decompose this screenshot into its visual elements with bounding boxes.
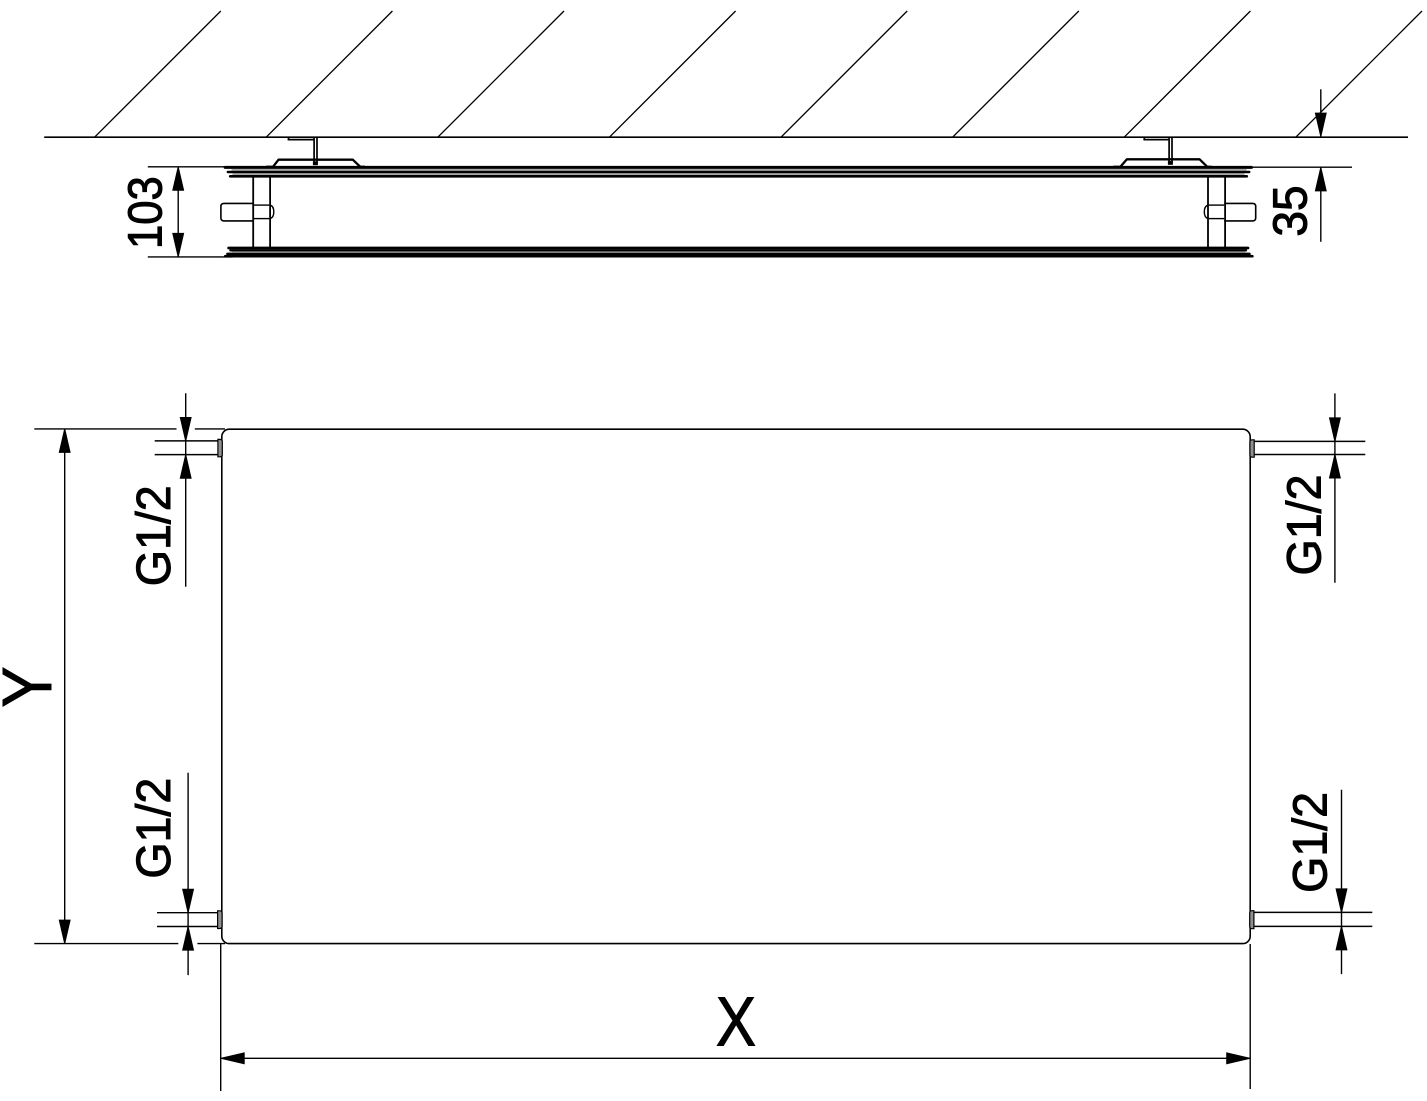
svg-text:103: 103 (117, 176, 172, 249)
svg-text:G1/2: G1/2 (1278, 475, 1332, 576)
svg-text:G1/2: G1/2 (127, 485, 181, 586)
svg-text:Y: Y (0, 666, 66, 707)
svg-text:G1/2: G1/2 (127, 778, 181, 879)
svg-text:X: X (716, 983, 756, 1061)
svg-text:35: 35 (1263, 185, 1317, 236)
svg-text:G1/2: G1/2 (1284, 792, 1338, 893)
